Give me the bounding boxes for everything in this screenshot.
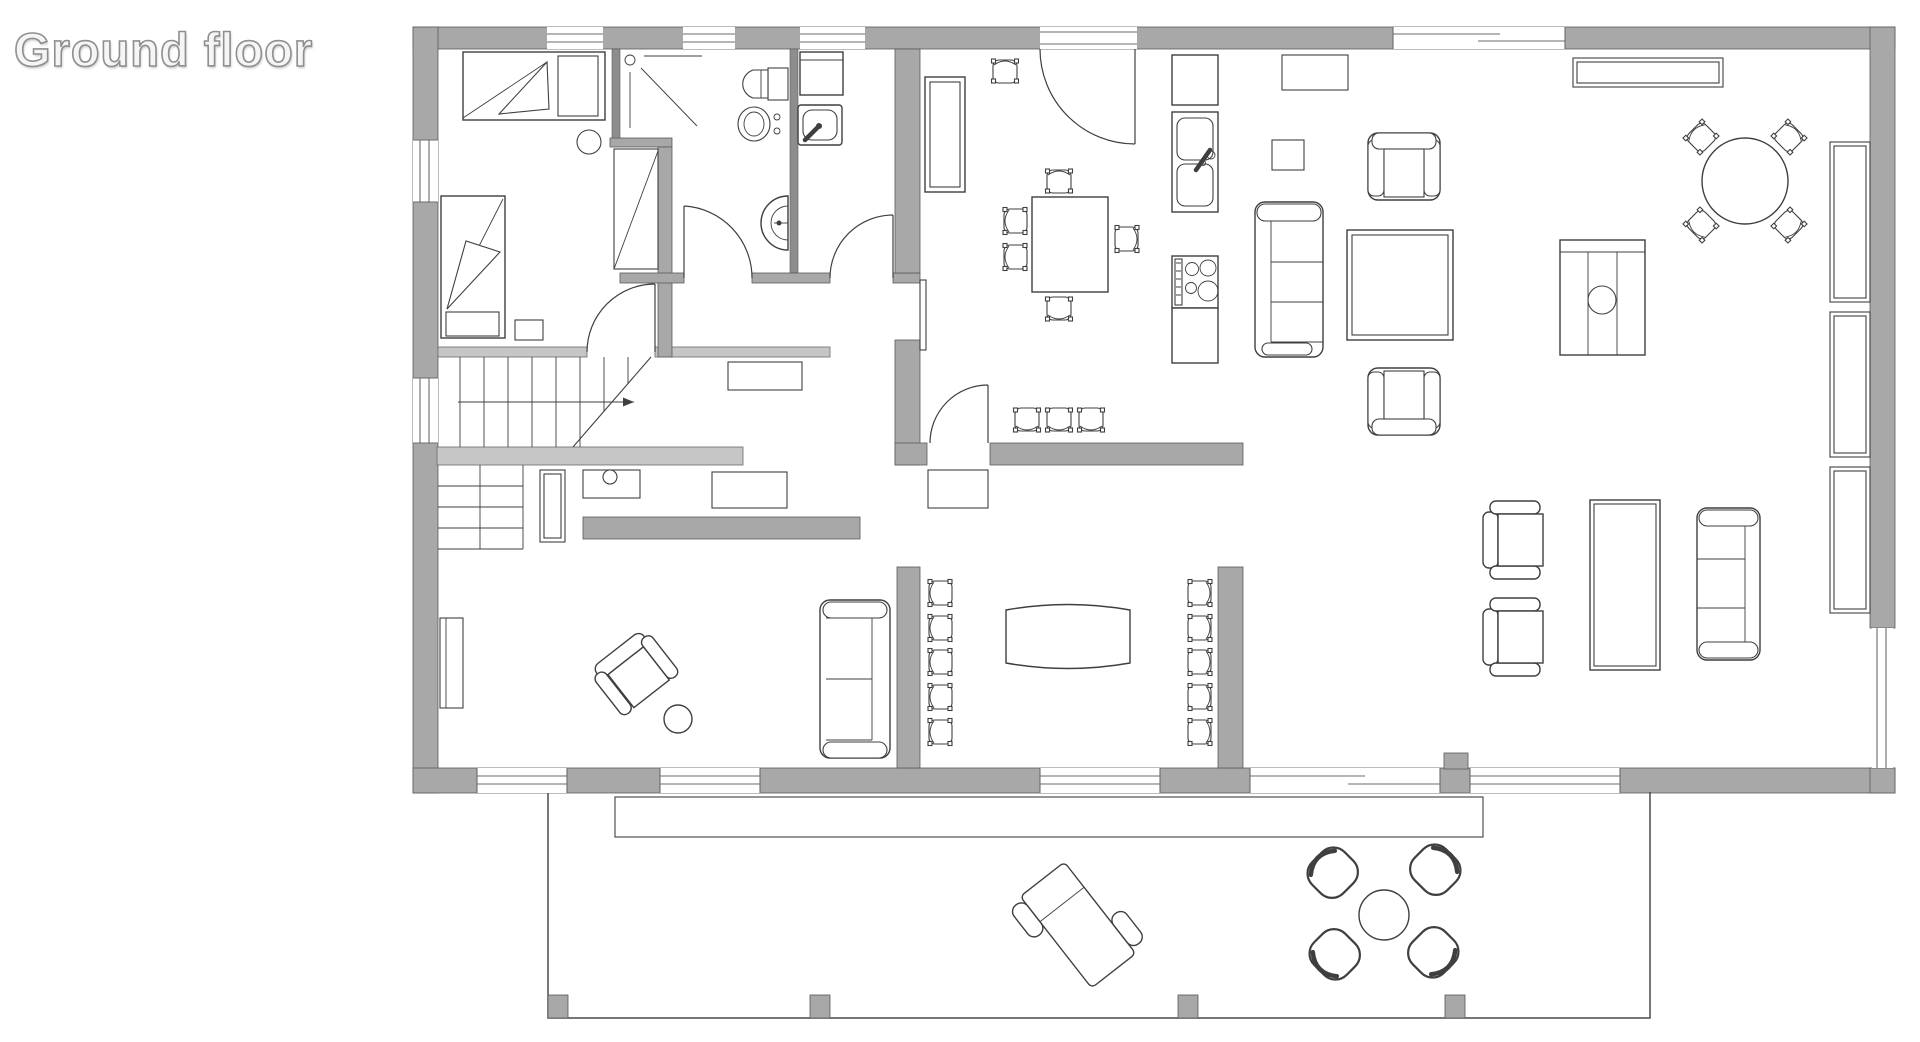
- utility-fixtures: [798, 52, 843, 145]
- shelf-icon: [1573, 58, 1723, 87]
- patio-chair-icon: [1303, 922, 1367, 986]
- bookcase-icon: [540, 470, 565, 542]
- pergola-post-icon: [1445, 995, 1465, 1018]
- chair-icon: [928, 719, 952, 746]
- washing-machine-icon: [800, 52, 843, 95]
- stair-upper-flight-icon: [458, 357, 651, 447]
- nightstand-icon: [515, 320, 543, 340]
- round-table-icon: [1702, 138, 1788, 224]
- shower-icon: [625, 55, 702, 128]
- pergola-post-icon: [1178, 995, 1198, 1018]
- shower-tray-icon: [798, 105, 842, 145]
- counter-icon: [1172, 55, 1218, 105]
- side-table-icon: [664, 705, 692, 733]
- pergola-post-icon: [810, 995, 830, 1018]
- chair-icon: [1003, 244, 1027, 271]
- bidet-icon: [738, 107, 780, 141]
- chair-icon: [1003, 208, 1027, 235]
- chair-icon: [1188, 580, 1212, 607]
- side-table-icon: [1272, 140, 1304, 170]
- coffee-table-icon: [1347, 230, 1453, 340]
- sofa-icon: [1697, 508, 1760, 660]
- sofa-icon: [1255, 202, 1323, 357]
- sideboard-icon: [1282, 55, 1348, 90]
- cabinet-icon: [1830, 142, 1870, 613]
- coffee-table-icon: [1590, 500, 1660, 670]
- chair-icon: [1771, 207, 1807, 243]
- door-icon: [587, 284, 655, 352]
- chair-icon: [928, 580, 952, 607]
- chair-icon: [1188, 615, 1212, 642]
- desk-icon: [583, 470, 640, 498]
- stair-lower-flight-icon: [438, 465, 523, 549]
- armchair-icon: [1368, 368, 1440, 435]
- side-table-icon: [712, 472, 787, 508]
- chair-icon: [1014, 408, 1041, 432]
- pergola-post-icon: [548, 995, 568, 1018]
- chair-icon: [928, 684, 952, 711]
- door-icon: [684, 206, 752, 278]
- floor-plan-drawing: [0, 0, 1920, 1042]
- two-seat-sofa-icon: [820, 600, 890, 758]
- chair-icon: [1683, 119, 1719, 155]
- living-room-furniture: [1255, 55, 1870, 676]
- console-table-icon: [728, 362, 802, 390]
- chair-icon: [992, 59, 1019, 83]
- patio-chair-icon: [1403, 838, 1467, 902]
- floor-plan-page: Ground floor: [0, 0, 1920, 1042]
- cabinet-icon: [440, 618, 463, 708]
- kitchen-furniture: [925, 55, 1218, 432]
- armchair-icon: [1483, 501, 1543, 579]
- door-icon: [830, 215, 893, 278]
- armchair-icon: [1483, 598, 1543, 676]
- chair-icon: [1078, 408, 1105, 432]
- dining-room-furniture: [928, 470, 1212, 746]
- stool-icon: [577, 130, 601, 154]
- single-bed-icon: [463, 52, 605, 120]
- wardrobe-icon: [614, 149, 658, 269]
- entry-door-icon: [1040, 27, 1137, 144]
- sink-icon: [1172, 112, 1218, 212]
- chair-icon: [1046, 169, 1073, 193]
- direction-arrow-icon: [623, 398, 634, 407]
- door-icon: [930, 385, 988, 443]
- study-furniture: [440, 362, 890, 758]
- sun-lounger-icon: [1007, 852, 1149, 999]
- chair-icon: [1188, 719, 1212, 746]
- counter-icon: [1172, 308, 1218, 363]
- chair-icon: [928, 649, 952, 676]
- toilet-icon: [743, 68, 788, 100]
- chair-icon: [1188, 684, 1212, 711]
- washbasin-icon: [761, 196, 788, 250]
- open-door-leaf-icon: [920, 280, 926, 350]
- chair-icon: [1683, 207, 1719, 243]
- patio-table-icon: [1359, 890, 1409, 940]
- stove-icon: [1172, 256, 1218, 308]
- sideboard-icon: [928, 470, 988, 508]
- chair-icon: [928, 615, 952, 642]
- chair-icon: [1188, 649, 1212, 676]
- chair-icon: [1046, 297, 1073, 321]
- terrace-step-icon: [615, 797, 1483, 837]
- patio-chair-icon: [1301, 841, 1365, 905]
- lounge-chair-icon: [588, 627, 680, 717]
- dining-table-icon: [1032, 197, 1108, 292]
- armchair-icon: [1368, 133, 1440, 200]
- single-bed-icon: [441, 196, 505, 338]
- tall-cabinet-icon: [925, 77, 965, 192]
- office-chair-icon: [603, 470, 617, 484]
- tv-sideboard-icon: [1560, 240, 1645, 355]
- terrace: [548, 792, 1650, 1018]
- long-table-icon: [1006, 605, 1130, 669]
- chair-icon: [1046, 408, 1073, 432]
- window-icon: [1872, 628, 1893, 768]
- patio-chair-icon: [1401, 920, 1465, 984]
- chair-icon: [1115, 226, 1139, 253]
- chair-icon: [1771, 119, 1807, 155]
- bedroom-furniture: [441, 52, 658, 340]
